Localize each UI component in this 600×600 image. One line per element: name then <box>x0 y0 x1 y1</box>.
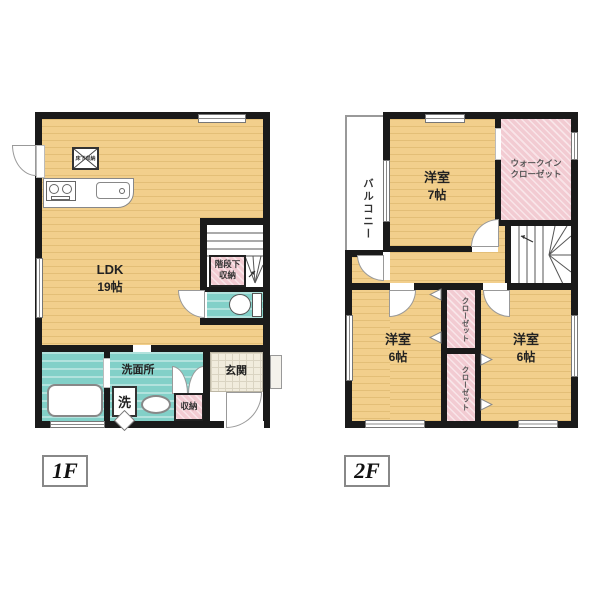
room7-size: 7帖 <box>428 188 447 202</box>
wall-toilet-bottom <box>200 318 270 325</box>
under-stair-storage-line2: 収納 <box>219 270 236 280</box>
window-2f-right <box>571 315 578 377</box>
window-1f-left <box>36 258 43 318</box>
closet-bottom-label: クローゼット <box>452 358 470 418</box>
kitchen-sink <box>96 182 130 199</box>
room6-right-name: 洋室 <box>513 332 539 347</box>
floor-tag-1f: 1F <box>42 455 88 487</box>
balcony-door-gap <box>383 252 390 280</box>
toilet-tank <box>252 293 262 317</box>
balcony-label: バルコニー <box>352 162 374 257</box>
entrance-label: 玄関 <box>214 364 258 378</box>
ldk-label: LDK 19帖 <box>80 262 140 296</box>
window-1f-bath <box>50 421 105 428</box>
wall-washsection-top <box>35 345 270 352</box>
wic-line1: ウォークイン <box>510 158 561 168</box>
room6-right-size: 6帖 <box>517 350 536 364</box>
ldk-name: LDK <box>97 262 124 277</box>
window-2f-bottom-right <box>518 420 558 428</box>
stove-burner-icon <box>62 184 72 194</box>
under-stair-storage: 階段下 収納 <box>209 255 246 287</box>
bathtub <box>47 384 103 417</box>
stove <box>46 181 76 201</box>
wall-toilet-top <box>207 287 263 292</box>
stove-burner-icon <box>49 184 59 194</box>
wall-hall-rooms <box>345 283 578 290</box>
floor-tag-1f-text: 1F <box>52 458 78 484</box>
washing-machine-label: 洗 <box>118 392 131 411</box>
ldk-side-door-arc <box>12 145 36 176</box>
room6-right-door-gap <box>483 283 507 290</box>
porch-step <box>270 355 282 389</box>
window-2f-left <box>346 315 353 381</box>
floor-plan-canvas: 床下収納 LDK 19帖 階段下 収納 <box>0 0 600 600</box>
washroom-label: 洗面所 <box>108 363 168 377</box>
room6-left-name: 洋室 <box>385 332 411 347</box>
washroom-sink <box>141 395 171 414</box>
stair-treads-2f <box>511 226 571 284</box>
closet-top-label: クローゼット <box>452 292 470 346</box>
faucet-icon <box>119 188 125 194</box>
window-2f-top <box>425 114 465 123</box>
ldk-side-door-gap <box>36 145 45 178</box>
floor-tag-2f-text: 2F <box>354 458 380 484</box>
under-stair-storage-line1: 階段下 <box>215 259 241 269</box>
floor-hatch: 床下収納 <box>72 147 99 170</box>
closet-door-triangle-icon <box>480 398 493 411</box>
ldk-size: 19帖 <box>97 280 122 294</box>
stove-grill-icon <box>51 196 70 200</box>
wall-stair-top <box>200 218 270 225</box>
storage-closet: 収納 <box>174 393 204 421</box>
room6-left-label: 洋室 6帖 <box>368 332 428 366</box>
stairs-2f <box>511 226 571 284</box>
window-2f-bottom-left <box>365 420 425 428</box>
under-stair-storage-label: 階段下 収納 <box>211 259 244 281</box>
room6-left-door-gap <box>390 283 414 290</box>
wall-washroom-entrance <box>203 345 210 428</box>
toilet-bowl <box>229 294 251 315</box>
room7-label: 洋室 7帖 <box>407 170 467 204</box>
room6-right-label: 洋室 6帖 <box>496 332 556 366</box>
wic-line2: クローゼット <box>510 169 561 179</box>
wic-label: ウォークイン クローゼット <box>502 158 570 180</box>
floor-hatch-label: 床下収納 <box>74 156 97 163</box>
storage-label: 収納 <box>180 401 197 412</box>
window-2f-wic-right <box>571 132 578 160</box>
closet-door-triangle-icon <box>429 288 442 301</box>
closet-door-triangle-icon <box>429 331 442 344</box>
ldk-washroom-door-gap <box>133 345 151 352</box>
window-2f-balcony <box>383 160 390 222</box>
room7-name: 洋室 <box>424 170 450 185</box>
floor-tag-2f: 2F <box>344 455 390 487</box>
room6-left-size: 6帖 <box>389 350 408 364</box>
closet-door-triangle-icon <box>480 353 493 366</box>
window-1f-top <box>198 114 246 123</box>
